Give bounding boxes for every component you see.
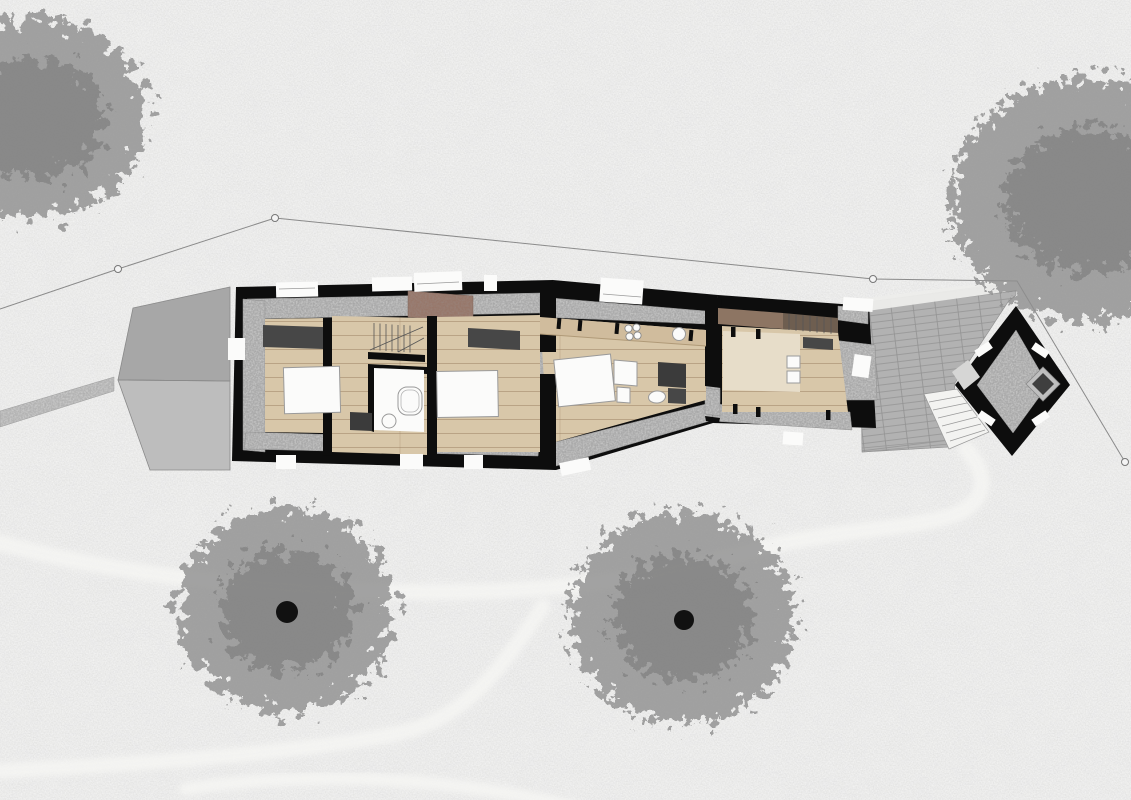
interior-wall: [427, 316, 437, 352]
window-gap: [484, 275, 497, 291]
dark-cabinet: [668, 388, 686, 404]
interior-wall: [323, 318, 332, 349]
window-gap: [464, 455, 483, 469]
interior-wall: [427, 370, 437, 460]
washbasin-counter: [614, 360, 637, 386]
window-gap: [414, 271, 463, 292]
window-gap: [228, 338, 245, 360]
window-gap: [843, 297, 874, 312]
bench-cushion: [787, 371, 800, 383]
block-divider-wall: [540, 281, 556, 352]
bed: [554, 354, 616, 407]
window-gap: [372, 276, 412, 291]
window-gap: [400, 454, 423, 469]
bed: [437, 370, 499, 417]
survey-point-marker: [272, 215, 279, 222]
wardrobe: [263, 325, 323, 349]
survey-point-marker: [115, 266, 122, 273]
wardrobe: [468, 328, 520, 350]
bench-cushion: [787, 356, 800, 368]
tree-trunk-dot: [674, 610, 694, 630]
window-gap: [276, 455, 296, 469]
tree: [570, 512, 794, 724]
tree: [178, 508, 394, 712]
stone-band: [705, 388, 720, 416]
window-gap: [599, 278, 644, 305]
window-gap: [276, 281, 318, 297]
kitchen-sink: [673, 328, 686, 341]
site-plan-canvas: [0, 0, 1131, 800]
sink: [382, 414, 396, 428]
survey-point-marker: [870, 276, 877, 283]
survey-point-marker: [1122, 459, 1129, 466]
stair-west: [368, 322, 425, 353]
window-gap: [852, 354, 872, 378]
stone-band: [243, 299, 265, 452]
tree-trunk-dot: [276, 601, 298, 623]
dark-cabinet: [350, 412, 372, 431]
window-gap: [783, 431, 804, 445]
dark-unit: [803, 337, 833, 350]
bathtub: [398, 387, 422, 415]
site-plan-drawing: [0, 0, 1131, 800]
shower: [658, 362, 686, 388]
block-divider-wall: [540, 374, 556, 470]
fixture: [617, 387, 630, 403]
bed: [283, 366, 340, 413]
